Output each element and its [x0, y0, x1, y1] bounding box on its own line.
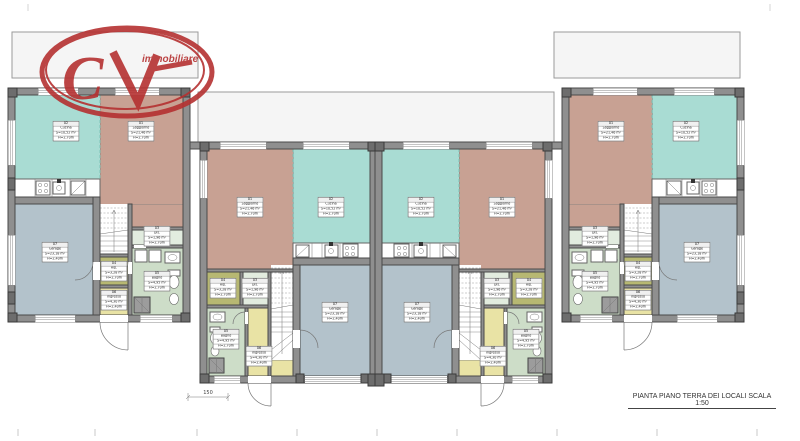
page-registration-marks — [28, 4, 770, 11]
room-height: H=2,70m — [513, 344, 538, 349]
label-rip-right-wing: 04Rip.S=3,28 m²H=2,70m — [625, 261, 651, 281]
label-soggiorno-left-wing: 01SoggiornoS=21,46 m²H=2,70m — [128, 121, 154, 141]
room-height: H=2,40m — [684, 257, 709, 262]
unit-middle-right — [375, 142, 552, 406]
label-dis-left-wing: 03Dis.S=1,96 m²H=2,70m — [144, 226, 170, 246]
room-height: H=2,70m — [582, 286, 607, 291]
room-area: S=4,30 m² — [246, 356, 271, 361]
room-height: H=2,70m — [582, 241, 607, 246]
room-height: H=2,40m — [480, 361, 505, 366]
room-area: S=4,95 m² — [213, 339, 238, 344]
label-garage-mid-left: 07GarageS=23,18 m²H=2,40m — [322, 302, 348, 322]
room-height: H=2,70m — [237, 212, 262, 217]
label-ingresso-mid-right: 06IngressoS=4,30 m²H=2,40m — [480, 346, 506, 366]
room-height: H=2,70m — [673, 136, 698, 141]
label-garage-right-wing: 07GarageS=23,18 m²H=2,40m — [684, 242, 710, 262]
label-garage-left-wing: 07GarageS=23,18 m²H=2,40m — [42, 242, 68, 262]
room-area: S=4,30 m² — [625, 300, 650, 305]
room-height: H=2,70m — [128, 136, 153, 141]
room-height: H=2,70m — [144, 241, 169, 246]
room-area: S=3,28 m² — [101, 271, 126, 276]
room-area: S=21,46 m² — [128, 131, 153, 136]
drawing-title: PIANTA PIANO TERRA DEI LOCALI SCALA 1:50 — [628, 393, 776, 409]
logo-company-name: immobiliare — [142, 54, 199, 65]
label-soggiorno-right-wing: 01SoggiornoS=21,46 m²H=2,70m — [598, 121, 624, 141]
room-area: S=3,28 m² — [516, 288, 541, 293]
label-ingresso-left-wing: 06IngressoS=4,30 m²H=2,40m — [101, 290, 127, 310]
label-dis-mid-left: 03Dis.S=1,96 m²H=2,70m — [242, 278, 268, 298]
label-bagno-mid-right: 05BagnoS=4,95 m²H=2,70m — [513, 329, 539, 349]
room-area: S=23,18 m² — [42, 252, 67, 257]
label-bagno-left-wing: 05BagnoS=4,95 m²H=2,70m — [144, 271, 170, 291]
unit-middle-left — [200, 142, 377, 406]
room-height: H=2,70m — [213, 344, 238, 349]
room-height: H=2,40m — [246, 361, 271, 366]
floor-plan-drawing: 150 C immobiliare — [0, 0, 800, 441]
room-area: S=4,30 m² — [101, 300, 126, 305]
dimension-line: 150 — [186, 390, 230, 401]
label-ingresso-right-wing: 06IngressoS=4,30 m²H=2,40m — [625, 290, 651, 310]
label-bagno-mid-left: 05BagnoS=4,95 m²H=2,70m — [213, 329, 239, 349]
label-bagno-right-wing: 05BagnoS=4,95 m²H=2,70m — [582, 271, 608, 291]
room-area: S=21,46 m² — [237, 207, 262, 212]
label-rip-mid-left: 04Rip.S=3,28 m²H=2,70m — [210, 278, 236, 298]
label-cucina-mid-right: 02CucinaS=10,52 m²H=2,70m — [408, 197, 434, 217]
room-area: S=23,18 m² — [684, 252, 709, 257]
room-area: S=1,96 m² — [242, 288, 267, 293]
room-area: S=4,30 m² — [480, 356, 505, 361]
room-height: H=2,70m — [598, 136, 623, 141]
label-dis-mid-right: 03Dis.S=1,96 m²H=2,70m — [484, 278, 510, 298]
label-soggiorno-mid-right: 01SoggiornoS=21,46 m²H=2,70m — [489, 197, 515, 217]
label-garage-mid-right: 07GarageS=23,18 m²H=2,40m — [404, 302, 430, 322]
room-height: H=2,40m — [42, 257, 67, 262]
room-area: S=4,95 m² — [513, 339, 538, 344]
room-height: H=2,40m — [322, 317, 347, 322]
room-area: S=23,18 m² — [322, 312, 347, 317]
room-area: S=3,28 m² — [625, 271, 650, 276]
room-height: H=2,70m — [242, 293, 267, 298]
room-height: H=2,70m — [53, 136, 78, 141]
room-height: H=2,40m — [625, 305, 650, 310]
rear-terrace — [198, 92, 554, 146]
room-area: S=10,52 m² — [408, 207, 433, 212]
label-cucina-right-wing: 02CucinaS=10,52 m²H=2,70m — [673, 121, 699, 141]
room-area: S=21,46 m² — [489, 207, 514, 212]
room-height: H=2,70m — [484, 293, 509, 298]
room-area: S=10,52 m² — [318, 207, 343, 212]
label-rip-mid-right: 04Rip.S=3,28 m²H=2,70m — [516, 278, 542, 298]
room-height: H=2,40m — [404, 317, 429, 322]
floor-plan-page: 150 C immobiliare 02CucinaS=10,52 m²H=2,… — [0, 0, 800, 441]
room-area: S=4,95 m² — [144, 281, 169, 286]
room-height: H=2,40m — [101, 305, 126, 310]
label-soggiorno-mid-left: 01SoggiornoS=21,46 m²H=2,70m — [237, 197, 263, 217]
room-area: S=23,18 m² — [404, 312, 429, 317]
label-cucina-mid-left: 02CucinaS=10,52 m²H=2,70m — [318, 197, 344, 217]
room-area: S=1,96 m² — [144, 236, 169, 241]
room-height: H=2,70m — [516, 293, 541, 298]
label-cucina-left-wing: 02CucinaS=10,52 m²H=2,70m — [53, 121, 79, 141]
logo-letter-c: C — [62, 45, 104, 113]
room-height: H=2,70m — [144, 286, 169, 291]
label-rip-left-wing: 04Rip.S=3,28 m²H=2,70m — [101, 261, 127, 281]
room-area: S=1,96 m² — [484, 288, 509, 293]
room-height: H=2,70m — [210, 293, 235, 298]
room-height: H=2,70m — [489, 212, 514, 217]
room-height: H=2,70m — [625, 276, 650, 281]
room-area: S=3,28 m² — [210, 288, 235, 293]
room-area: S=4,95 m² — [582, 281, 607, 286]
room-height: H=2,70m — [101, 276, 126, 281]
label-dis-right-wing: 03Dis.S=1,96 m²H=2,70m — [582, 226, 608, 246]
room-height: H=2,70m — [408, 212, 433, 217]
room-area: S=21,46 m² — [598, 131, 623, 136]
room-height: H=2,70m — [318, 212, 343, 217]
dimension-value: 150 — [203, 390, 213, 396]
label-ingresso-mid-left: 06IngressoS=4,30 m²H=2,40m — [246, 346, 272, 366]
room-area: S=10,52 m² — [53, 131, 78, 136]
ruler-ticks — [18, 429, 757, 436]
room-area: S=10,52 m² — [673, 131, 698, 136]
room-area: S=1,96 m² — [582, 236, 607, 241]
